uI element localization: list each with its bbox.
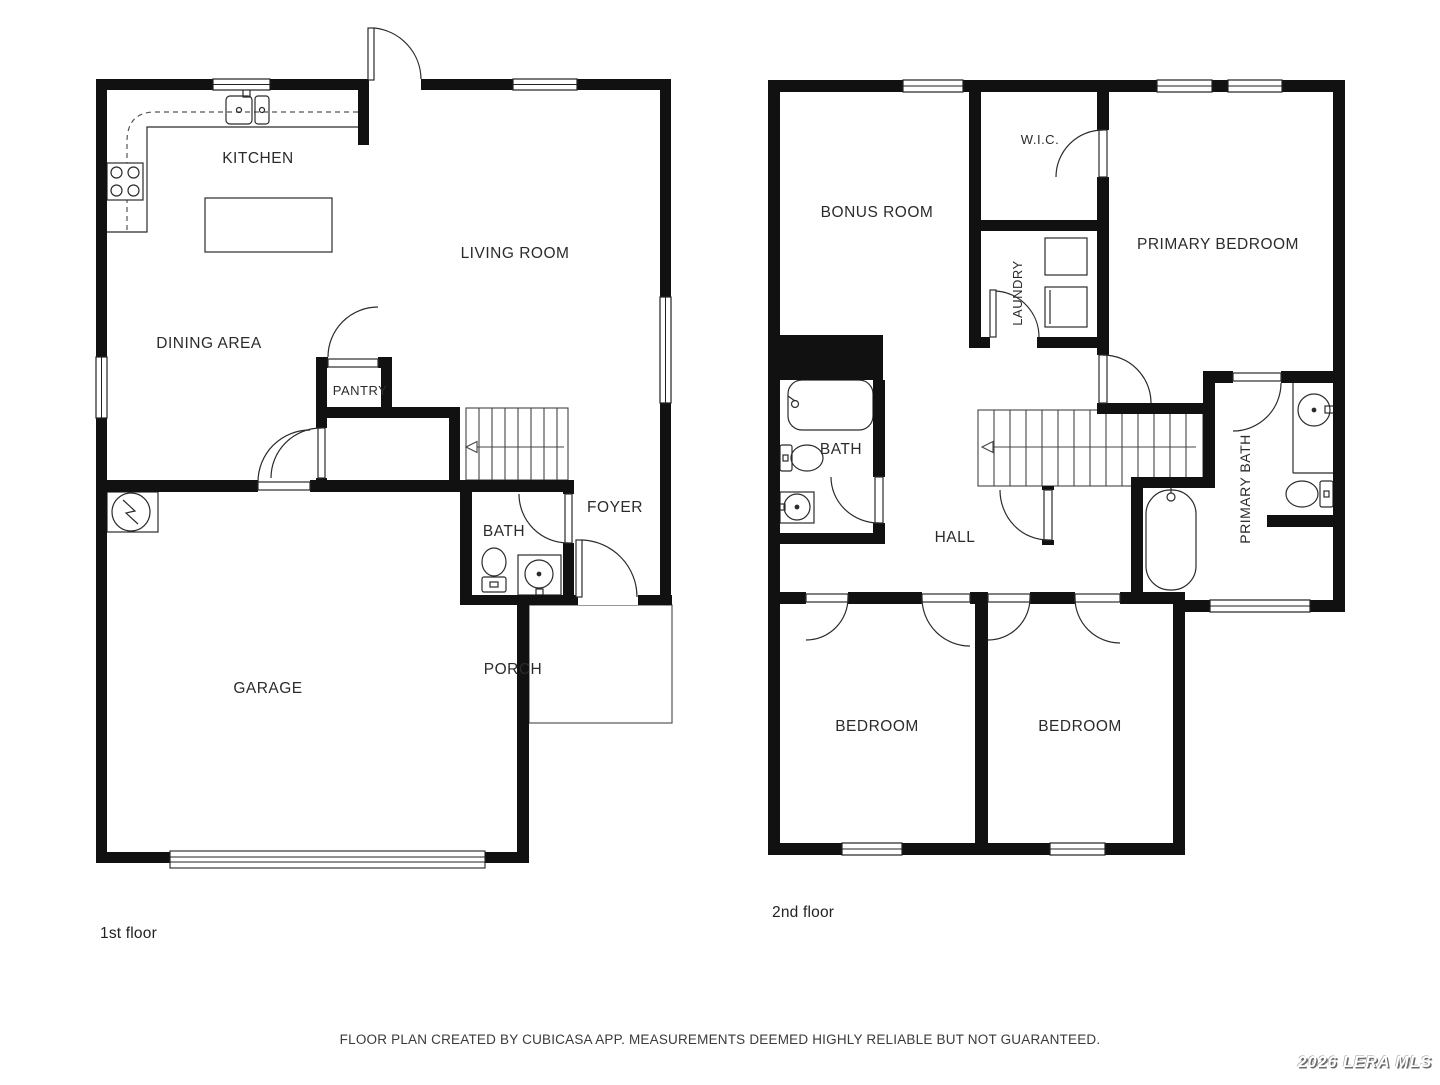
window <box>1228 80 1282 92</box>
vanity-sink-icon <box>518 555 561 595</box>
door-swing <box>1097 355 1151 403</box>
door-swing <box>922 592 970 646</box>
door-swing <box>1075 592 1120 643</box>
window <box>1210 600 1310 612</box>
room-label-primary-bath: PRIMARY BATH <box>1237 434 1253 543</box>
kitchen-fixtures <box>107 87 358 252</box>
porch-outline <box>529 605 672 723</box>
floor-caption-first: 1st floor <box>100 925 157 942</box>
door-swing <box>1000 490 1054 540</box>
room-label-wic: W.I.C. <box>1021 132 1059 147</box>
room-label-bedroom-right: BEDROOM <box>1038 718 1122 735</box>
first-floor-walls <box>96 79 672 863</box>
vanity-sink-icon <box>779 492 814 523</box>
room-label-dining-area: DINING AREA <box>156 335 262 352</box>
first-floor-plan: KITCHEN LIVING ROOM DINING AREA PANTRY B… <box>96 28 672 942</box>
washer-icon <box>1045 238 1087 275</box>
floor-caption-second: 2nd floor <box>772 904 834 921</box>
window <box>842 843 902 855</box>
room-label-bath-2: BATH <box>820 441 862 458</box>
room-label-bath-1: BATH <box>483 523 525 540</box>
mls-watermark: 2026 LERA MLS <box>1298 1054 1432 1072</box>
room-label-living-room: LIVING ROOM <box>461 245 570 262</box>
room-label-bedroom-left: BEDROOM <box>835 718 919 735</box>
door-swing <box>806 592 848 640</box>
bathtub-icon <box>1146 488 1196 590</box>
water-heater-icon <box>107 492 158 532</box>
first-floor-bath-fixtures <box>482 548 561 595</box>
room-label-kitchen: KITCHEN <box>222 150 294 167</box>
window <box>1050 843 1105 855</box>
door-swing <box>328 307 378 368</box>
door-swing <box>519 494 574 543</box>
window <box>213 79 270 90</box>
room-label-garage: GARAGE <box>233 680 302 697</box>
door-swing <box>576 540 638 605</box>
door-swing <box>258 430 310 492</box>
floor-plan-sheet: KITCHEN LIVING ROOM DINING AREA PANTRY B… <box>0 0 1440 1080</box>
window <box>1157 80 1212 92</box>
door-swing <box>271 428 327 478</box>
garage-door <box>170 851 485 868</box>
window <box>96 357 107 418</box>
kitchen-island <box>205 198 332 252</box>
first-floor-doors <box>258 28 638 605</box>
window <box>660 297 671 403</box>
room-label-hall: HALL <box>935 529 976 546</box>
vanity-sink-icon <box>1293 383 1334 473</box>
second-floor-plan: BONUS ROOM W.I.C. LAUNDRY PRIMARY BEDROO… <box>768 80 1345 921</box>
staircase <box>978 410 1203 486</box>
window <box>513 79 577 90</box>
door-swing <box>831 477 885 523</box>
stove-icon <box>107 163 143 200</box>
room-label-laundry: LAUNDRY <box>1010 260 1025 325</box>
dryer-icon <box>1045 287 1087 327</box>
bathtub-icon <box>788 380 873 430</box>
room-label-porch: PORCH <box>484 661 542 678</box>
door-swing <box>988 592 1030 640</box>
window <box>903 80 963 92</box>
toilet-icon <box>780 445 823 471</box>
room-label-pantry: PANTRY <box>333 383 388 398</box>
toilet-icon <box>482 548 506 592</box>
upper-cabinet-dashed-line <box>127 112 358 230</box>
staircase <box>466 408 568 480</box>
room-label-bonus-room: BONUS ROOM <box>821 204 934 221</box>
toilet-icon <box>1286 481 1333 507</box>
door-swing <box>368 28 421 90</box>
kitchen-counter <box>107 127 358 232</box>
door-swing <box>1233 371 1281 431</box>
room-label-primary-bedroom: PRIMARY BEDROOM <box>1137 236 1299 253</box>
disclaimer-text: FLOOR PLAN CREATED BY CUBICASA APP. MEAS… <box>0 1032 1440 1047</box>
door-swing <box>1056 130 1109 177</box>
kitchen-sink-icon <box>226 87 269 124</box>
floor-plan-drawing: KITCHEN LIVING ROOM DINING AREA PANTRY B… <box>0 0 1440 1080</box>
room-label-foyer: FOYER <box>587 499 643 516</box>
